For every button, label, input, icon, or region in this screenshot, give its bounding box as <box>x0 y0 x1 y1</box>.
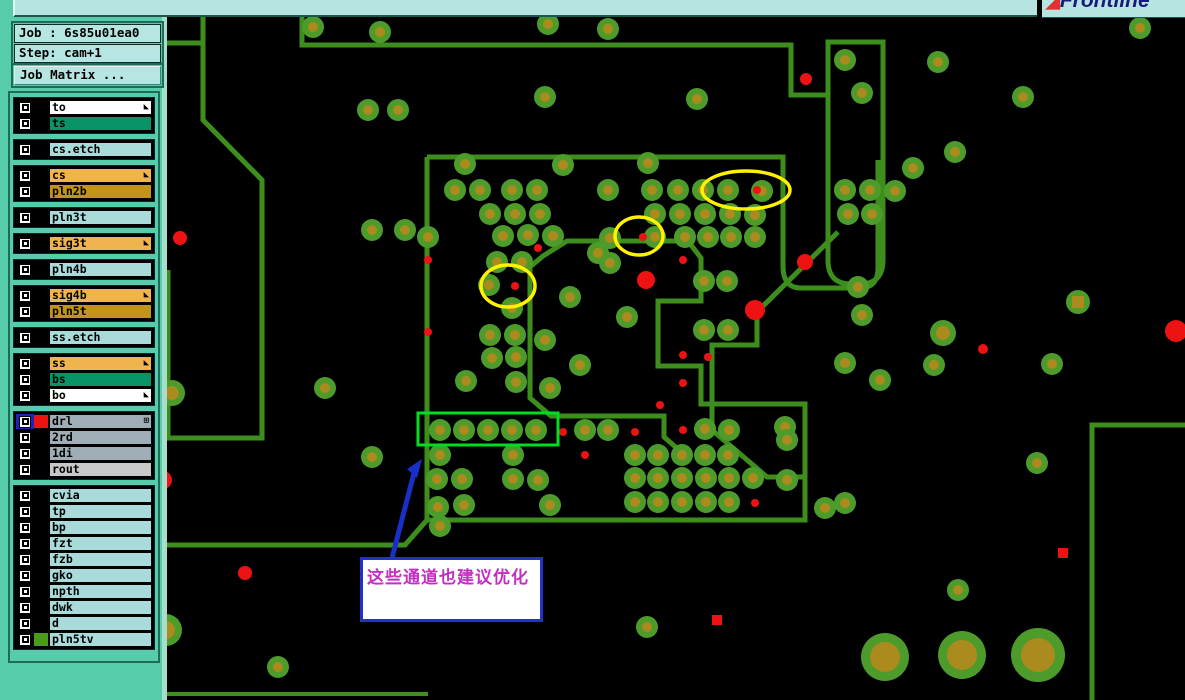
pad-center <box>485 209 495 219</box>
pad-center <box>435 521 445 531</box>
pad-center <box>435 450 445 460</box>
layer-name-label: cvia <box>52 489 80 502</box>
layer-row-dwk[interactable]: dwk <box>16 600 152 615</box>
pad-center <box>933 57 943 67</box>
pad-center <box>867 209 877 219</box>
layer-name-label: to <box>52 101 66 114</box>
pad-center <box>840 498 850 508</box>
pad-center <box>603 24 613 34</box>
pcb-canvas[interactable] <box>0 0 1185 700</box>
drill-dot <box>679 426 687 434</box>
layer-group-7: ss.etch <box>13 327 155 348</box>
pad-center <box>677 497 687 507</box>
layer-checkbox-bp[interactable] <box>19 522 31 534</box>
drill-dot <box>753 186 761 194</box>
layer-checkbox-cs[interactable] <box>19 170 31 182</box>
layer-swatch-spacer <box>34 569 48 582</box>
pad-center <box>507 425 517 435</box>
pad-center <box>367 225 377 235</box>
pad-center <box>511 377 521 387</box>
pad-center <box>545 500 555 510</box>
layer-name-ts[interactable]: ts <box>49 116 152 131</box>
pad-center <box>701 473 711 483</box>
pcb-background <box>167 17 1185 700</box>
drill-dot <box>424 256 432 264</box>
pad-center <box>865 185 875 195</box>
layer-row-d[interactable]: d <box>16 616 152 631</box>
pad-center <box>723 325 733 335</box>
layer-checkbox-tp[interactable] <box>19 506 31 518</box>
layer-name-bp[interactable]: bp <box>49 520 152 535</box>
drill-dot <box>800 73 812 85</box>
pad-center <box>543 19 553 29</box>
layer-name-label: sig3t <box>52 237 87 250</box>
pad-center <box>650 232 660 242</box>
pad-center <box>782 435 792 445</box>
pad-center <box>699 276 709 286</box>
pad-center <box>840 358 850 368</box>
layer-row-ts[interactable]: ts <box>16 116 152 131</box>
logo-text: Frontline <box>1060 0 1150 12</box>
cam-application-window: ◢Frontline Job : 6s85u01ea0 Step: cam+1 … <box>0 0 1185 700</box>
pad-center <box>699 325 709 335</box>
pad-center <box>857 310 867 320</box>
pad-center <box>1032 458 1042 468</box>
drill-dot <box>679 256 687 264</box>
layer-arrow-icon: ◣ <box>144 391 149 400</box>
pad-center <box>483 425 493 435</box>
annotation-note: 这些通道也建议优化 <box>360 557 543 622</box>
layer-checkbox-pln5t[interactable] <box>19 306 31 318</box>
layer-swatch-spacer <box>34 289 48 302</box>
pad-center <box>460 159 470 169</box>
pad-center <box>675 209 685 219</box>
layer-name-label: sig4b <box>52 289 87 302</box>
layer-name-label: bo <box>52 389 66 402</box>
layer-arrow-icon: ◣ <box>144 291 149 300</box>
layer-checkbox-npth[interactable] <box>19 586 31 598</box>
drill-dot <box>173 231 187 245</box>
job-matrix-button[interactable]: Job Matrix ... <box>11 63 164 88</box>
layer-name-npth[interactable]: npth <box>49 584 152 599</box>
pad-center <box>531 425 541 435</box>
layer-group-3: pln3t <box>13 207 155 228</box>
layer-checkbox-cs.etch[interactable] <box>19 144 31 156</box>
layer-name-label: pln3t <box>52 211 87 224</box>
layer-checkbox-drl[interactable] <box>19 416 31 428</box>
layer-group-6: sig4b◣pln5t <box>13 285 155 322</box>
layer-name-gko[interactable]: gko <box>49 568 152 583</box>
drill-dot <box>639 233 647 241</box>
layer-name-pln3t[interactable]: pln3t <box>49 210 152 225</box>
pad-center <box>700 209 710 219</box>
layer-name-2rd[interactable]: 2rd <box>49 430 152 445</box>
layer-row-bp[interactable]: bp <box>16 520 152 535</box>
pad-center <box>722 276 732 286</box>
pad-center <box>650 209 660 219</box>
pad-center <box>461 376 471 386</box>
layer-row-to[interactable]: to◣ <box>16 100 152 115</box>
layer-checkbox-fzt[interactable] <box>19 538 31 550</box>
layer-checkbox-dwk[interactable] <box>19 602 31 614</box>
pad-center <box>840 55 850 65</box>
pad-center <box>953 585 963 595</box>
drill-dot <box>559 428 567 436</box>
layer-row-fzt[interactable]: fzt <box>16 536 152 551</box>
layer-name-label: fzb <box>52 553 73 566</box>
pad-center <box>701 497 711 507</box>
layer-name-fzb[interactable]: fzb <box>49 552 152 567</box>
pad-center <box>700 424 710 434</box>
pad-center <box>703 232 713 242</box>
frontline-logo: ◢Frontline <box>1042 0 1185 18</box>
drill-dot <box>751 499 759 507</box>
pad-center <box>853 282 863 292</box>
layer-row-pln2b[interactable]: pln2b <box>16 184 152 199</box>
pad-center <box>647 185 657 195</box>
pad-center <box>857 88 867 98</box>
layer-swatch-spacer <box>34 553 48 566</box>
layer-group-5: pln4b <box>13 259 155 280</box>
layer-row-rout[interactable]: rout <box>16 462 152 477</box>
pad-center <box>457 474 467 484</box>
pad-center <box>642 622 652 632</box>
pad-center <box>820 503 830 513</box>
pad-center <box>510 330 520 340</box>
layer-swatch-spacer <box>34 263 48 276</box>
layer-row-gko[interactable]: gko <box>16 568 152 583</box>
layer-row-pln3t[interactable]: pln3t <box>16 210 152 225</box>
layer-swatch-spacer <box>34 431 48 444</box>
layer-row-bo[interactable]: bo◣ <box>16 388 152 403</box>
drill-dot <box>978 344 988 354</box>
layer-group-4: sig3t◣ <box>13 233 155 254</box>
pad-center <box>367 452 377 462</box>
pad-center <box>575 360 585 370</box>
layer-checkbox-1di[interactable] <box>19 448 31 460</box>
layer-swatch-spacer <box>34 521 48 534</box>
layer-swatch-spacer <box>34 169 48 182</box>
layer-arrow-icon: ◣ <box>144 103 149 112</box>
layer-checkbox-to[interactable] <box>19 102 31 114</box>
pad-center <box>936 326 950 340</box>
job-matrix-button-label: Job Matrix ... <box>14 66 161 85</box>
layer-swatch-spacer <box>34 357 48 370</box>
drill-dot <box>656 401 664 409</box>
pad-center <box>375 27 385 37</box>
layer-swatch-spacer <box>34 537 48 550</box>
pad-center <box>540 335 550 345</box>
layer-name-label: bs <box>52 373 66 386</box>
layer-row-pln4b[interactable]: pln4b <box>16 262 152 277</box>
layer-swatch-spacer <box>34 373 48 386</box>
layer-swatch-spacer <box>34 101 48 114</box>
layer-swatch-spacer <box>34 617 48 630</box>
layer-checkbox-pln2b[interactable] <box>19 186 31 198</box>
pad-center <box>782 475 792 485</box>
layer-checkbox-fzb[interactable] <box>19 554 31 566</box>
layer-row-drl[interactable]: drl⊞ <box>16 414 152 429</box>
layer-group-8: ss◣bsbo◣ <box>13 353 155 406</box>
layer-name-ss[interactable]: ss◣ <box>49 356 152 371</box>
step-label: Step: cam+1 <box>14 44 161 63</box>
layer-row-pln5tv[interactable]: pln5tv <box>16 632 152 647</box>
layer-name-label: d <box>52 617 59 630</box>
pad-center <box>393 105 403 115</box>
layer-name-cvia[interactable]: cvia <box>49 488 152 503</box>
layer-name-to[interactable]: to◣ <box>49 100 152 115</box>
pad-center <box>459 425 469 435</box>
layer-group-9: drl⊞2rd1dirout <box>13 411 155 480</box>
pad-center <box>725 209 735 219</box>
drill-dot <box>534 244 542 252</box>
layer-name-d[interactable]: d <box>49 616 152 631</box>
pad-center <box>498 231 508 241</box>
layer-name-label: npth <box>52 585 80 598</box>
layer-checkbox-sig4b[interactable] <box>19 290 31 302</box>
pad-center <box>603 185 613 195</box>
layer-name-drl[interactable]: drl⊞ <box>49 414 152 429</box>
pad-center <box>750 210 760 220</box>
pad-center <box>475 185 485 195</box>
pad-center <box>929 360 939 370</box>
pad-center <box>508 450 518 460</box>
drill-dot <box>712 615 722 625</box>
pad-center <box>677 450 687 460</box>
pad-center <box>507 185 517 195</box>
layer-checkbox-2rd[interactable] <box>19 432 31 444</box>
layer-name-label: pln5tv <box>52 633 94 646</box>
pad-center <box>540 92 550 102</box>
layer-name-pln5t[interactable]: pln5t <box>49 304 152 319</box>
pad-center <box>947 640 977 670</box>
pad-center <box>435 425 445 435</box>
layer-name-pln4b[interactable]: pln4b <box>49 262 152 277</box>
layer-row-pln5t[interactable]: pln5t <box>16 304 152 319</box>
layer-swatch-spacer <box>34 447 48 460</box>
layer-row-sig3t[interactable]: sig3t◣ <box>16 236 152 251</box>
layer-row-bs[interactable]: bs <box>16 372 152 387</box>
pad-center <box>870 642 900 672</box>
drill-dot <box>679 379 687 387</box>
pad-center <box>511 352 521 362</box>
layer-group-0: to◣ts <box>13 97 155 134</box>
drill-dot <box>1058 548 1068 558</box>
pad-center <box>950 147 960 157</box>
pad-center <box>450 185 460 195</box>
pad-center <box>630 473 640 483</box>
pad-center <box>1135 23 1145 33</box>
drill-dot <box>745 300 765 320</box>
layer-name-ss.etch[interactable]: ss.etch <box>49 330 152 345</box>
layer-name-label: 2rd <box>52 431 73 444</box>
layer-name-tp[interactable]: tp <box>49 504 152 519</box>
layer-grid-icon: ⊞ <box>144 417 149 426</box>
layer-swatch-spacer <box>34 601 48 614</box>
pad-center <box>459 500 469 510</box>
pad-center <box>653 450 663 460</box>
pad-center <box>308 22 318 32</box>
layer-name-label: 1di <box>52 447 73 460</box>
pad-center <box>680 232 690 242</box>
layer-row-ss[interactable]: ss◣ <box>16 356 152 371</box>
layer-checkbox-pln4b[interactable] <box>19 264 31 276</box>
pad-center <box>533 475 543 485</box>
layer-row-cs.etch[interactable]: cs.etch <box>16 142 152 157</box>
pad-center <box>677 473 687 483</box>
pad-center <box>433 502 443 512</box>
layer-checkbox-bs[interactable] <box>19 374 31 386</box>
layer-name-rout[interactable]: rout <box>49 462 152 477</box>
layer-name-label: fzt <box>52 537 73 550</box>
pad-center <box>535 209 545 219</box>
layer-arrow-icon: ◣ <box>144 171 149 180</box>
drill-dot <box>238 566 252 580</box>
layer-checkbox-sig3t[interactable] <box>19 238 31 250</box>
pad-center <box>653 473 663 483</box>
pad-center <box>510 209 520 219</box>
layer-color-swatch-pln5tv <box>34 633 48 646</box>
logo-swoosh-icon: ◢ <box>1046 0 1060 11</box>
pad-center <box>532 185 542 195</box>
pad-center <box>908 163 918 173</box>
layer-name-pln2b[interactable]: pln2b <box>49 184 152 199</box>
pad-center <box>724 425 734 435</box>
layer-row-cvia[interactable]: cvia <box>16 488 152 503</box>
layer-name-label: gko <box>52 569 73 582</box>
pad-center <box>1018 92 1028 102</box>
job-info-panel: Job : 6s85u01ea0 Step: cam+1 <box>11 21 164 66</box>
pad-center <box>580 425 590 435</box>
pad-center <box>432 474 442 484</box>
layer-group-1: cs.etch <box>13 139 155 160</box>
layer-row-2rd[interactable]: 2rd <box>16 430 152 445</box>
annotation-note-text: 这些通道也建议优化 <box>367 568 529 588</box>
layer-arrow-icon: ◣ <box>144 359 149 368</box>
layer-swatch-spacer <box>34 463 48 476</box>
pad-center <box>484 280 494 290</box>
layer-checkbox-pln5tv[interactable] <box>19 634 31 646</box>
layer-swatch-spacer <box>34 117 48 130</box>
layer-name-label: pln2b <box>52 185 87 198</box>
layer-row-cs[interactable]: cs◣ <box>16 168 152 183</box>
pad-center <box>508 474 518 484</box>
layer-name-label: ts <box>52 117 66 130</box>
pad-center <box>890 186 900 196</box>
layer-color-swatch-drl <box>34 415 48 428</box>
layer-checkbox-rout[interactable] <box>19 464 31 476</box>
layer-checkbox-cvia[interactable] <box>19 490 31 502</box>
layer-name-label: bp <box>52 521 66 534</box>
layer-arrow-icon: ◣ <box>144 239 149 248</box>
layer-name-label: pln5t <box>52 305 87 318</box>
pad-center <box>363 105 373 115</box>
layer-group-10: cviatpbpfztfzbgkonpthdwkdpln5tv <box>13 485 155 650</box>
layer-name-pln5tv[interactable]: pln5tv <box>49 632 152 647</box>
pad-center <box>565 292 575 302</box>
layer-swatch-spacer <box>34 305 48 318</box>
layer-name-label: tp <box>52 505 66 518</box>
layer-row-1di[interactable]: 1di <box>16 446 152 461</box>
pad-center <box>750 232 760 242</box>
layer-name-bo[interactable]: bo◣ <box>49 388 152 403</box>
layer-swatch-spacer <box>34 505 48 518</box>
layer-row-fzb[interactable]: fzb <box>16 552 152 567</box>
layer-checkbox-ts[interactable] <box>19 118 31 130</box>
layer-row-npth[interactable]: npth <box>16 584 152 599</box>
pad-center <box>1047 359 1057 369</box>
pad-center <box>875 375 885 385</box>
drill-dot <box>704 353 712 361</box>
pad-center <box>622 312 632 322</box>
layer-name-1di[interactable]: 1di <box>49 446 152 461</box>
layer-name-bs[interactable]: bs <box>49 372 152 387</box>
pad-center <box>593 248 603 258</box>
pad-center <box>1072 296 1084 308</box>
layer-row-tp[interactable]: tp <box>16 504 152 519</box>
job-label: Job : 6s85u01ea0 <box>14 24 161 43</box>
layer-checkbox-d[interactable] <box>19 618 31 630</box>
pad-center <box>843 209 853 219</box>
pad-center <box>748 473 758 483</box>
pad-center <box>724 497 734 507</box>
layer-name-sig3t[interactable]: sig3t◣ <box>49 236 152 251</box>
pad-center <box>723 185 733 195</box>
layer-name-label: cs.etch <box>52 143 100 156</box>
pad-center <box>643 158 653 168</box>
layer-name-sig4b[interactable]: sig4b◣ <box>49 288 152 303</box>
drill-dot <box>581 451 589 459</box>
layer-name-cs[interactable]: cs◣ <box>49 168 152 183</box>
layer-name-label: dwk <box>52 601 73 614</box>
pad-center <box>400 225 410 235</box>
layer-name-cs.etch[interactable]: cs.etch <box>49 142 152 157</box>
layer-swatch-spacer <box>34 389 48 402</box>
layer-list-panel: to◣tscs.etchcs◣pln2bpln3tsig3t◣pln4bsig4… <box>8 91 160 663</box>
pad-center <box>723 450 733 460</box>
layer-name-fzt[interactable]: fzt <box>49 536 152 551</box>
pad-center <box>724 473 734 483</box>
pad-center <box>1021 638 1055 672</box>
pad-center <box>603 425 613 435</box>
layer-checkbox-gko[interactable] <box>19 570 31 582</box>
pad-center <box>523 230 533 240</box>
pad-center <box>700 450 710 460</box>
layer-row-ss.etch[interactable]: ss.etch <box>16 330 152 345</box>
layer-swatch-spacer <box>34 237 48 250</box>
pad-center <box>630 497 640 507</box>
drill-dot <box>679 351 687 359</box>
layer-group-2: cs◣pln2b <box>13 165 155 202</box>
layer-row-sig4b[interactable]: sig4b◣ <box>16 288 152 303</box>
drill-dot <box>424 328 432 336</box>
pad-center <box>485 330 495 340</box>
pad-center <box>548 231 558 241</box>
pad-center <box>545 383 555 393</box>
layer-name-label: ss.etch <box>52 331 100 344</box>
pad-center <box>273 662 283 672</box>
window-title-bar[interactable] <box>13 0 1037 17</box>
layer-checkbox-bo[interactable] <box>19 390 31 402</box>
layer-name-dwk[interactable]: dwk <box>49 600 152 615</box>
layer-checkbox-ss[interactable] <box>19 358 31 370</box>
layer-checkbox-ss.etch[interactable] <box>19 332 31 344</box>
layer-swatch-spacer <box>34 489 48 502</box>
layer-name-label: drl <box>52 415 73 428</box>
layer-checkbox-pln3t[interactable] <box>19 212 31 224</box>
drill-dot <box>511 282 519 290</box>
layer-swatch-spacer <box>34 143 48 156</box>
